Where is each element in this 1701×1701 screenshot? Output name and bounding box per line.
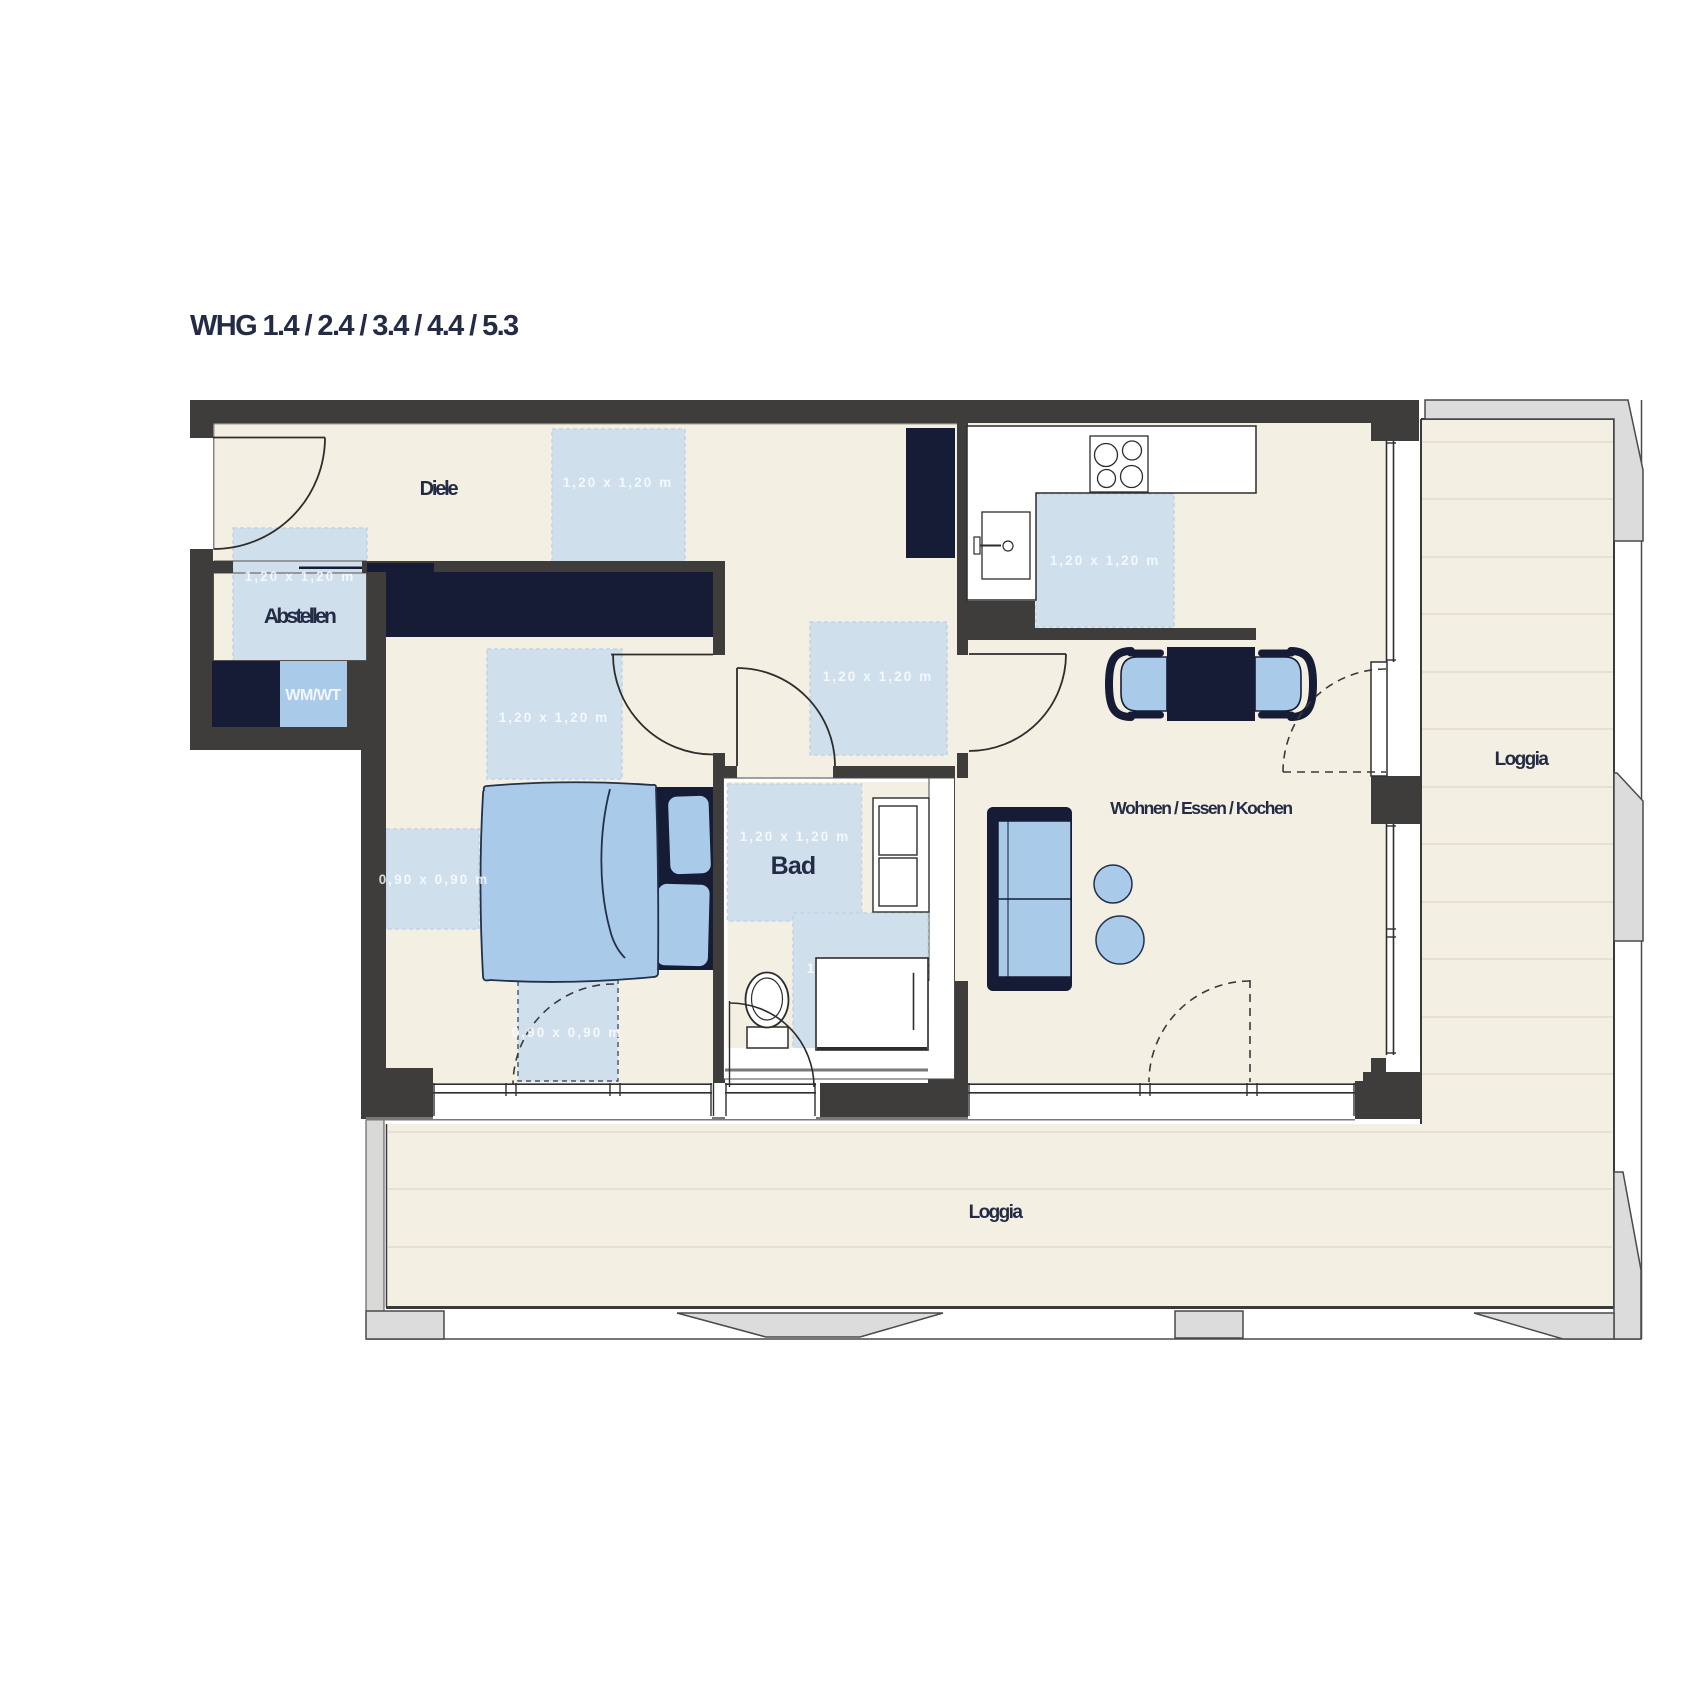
svg-text:1,20 x 1,20 m: 1,20 x 1,20 m (1050, 553, 1161, 568)
svg-text:0,90 x 0,90 m: 0,90 x 0,90 m (512, 1025, 623, 1040)
svg-text:1,20 x 1,20 m: 1,20 x 1,20 m (740, 829, 851, 844)
svg-text:WHG 1.4 / 2.4 / 3.4 / 4.4 / 5.: WHG 1.4 / 2.4 / 3.4 / 4.4 / 5.3 (190, 310, 519, 342)
svg-text:WM/WT: WM/WT (285, 687, 341, 704)
svg-text:Loggia: Loggia (969, 1202, 1024, 1223)
svg-text:Diele: Diele (420, 478, 459, 500)
svg-text:Bad: Bad (771, 852, 816, 880)
svg-text:Wohnen / Essen / Kochen: Wohnen / Essen / Kochen (1110, 798, 1292, 818)
svg-text:1,20 x 1,20 m: 1,20 x 1,20 m (807, 961, 918, 976)
svg-text:1,20 x 1,20 m: 1,20 x 1,20 m (823, 669, 934, 684)
svg-text:1,20 x 1,20 m: 1,20 x 1,20 m (499, 710, 610, 725)
svg-text:Loggia: Loggia (1495, 749, 1550, 770)
svg-text:Abstellen: Abstellen (264, 605, 336, 628)
svg-text:0,90 x 0,90 m: 0,90 x 0,90 m (379, 872, 490, 887)
svg-text:1,20 x 1,20 m: 1,20 x 1,20 m (245, 569, 356, 584)
svg-text:1,20 x 1,20 m: 1,20 x 1,20 m (563, 475, 674, 490)
